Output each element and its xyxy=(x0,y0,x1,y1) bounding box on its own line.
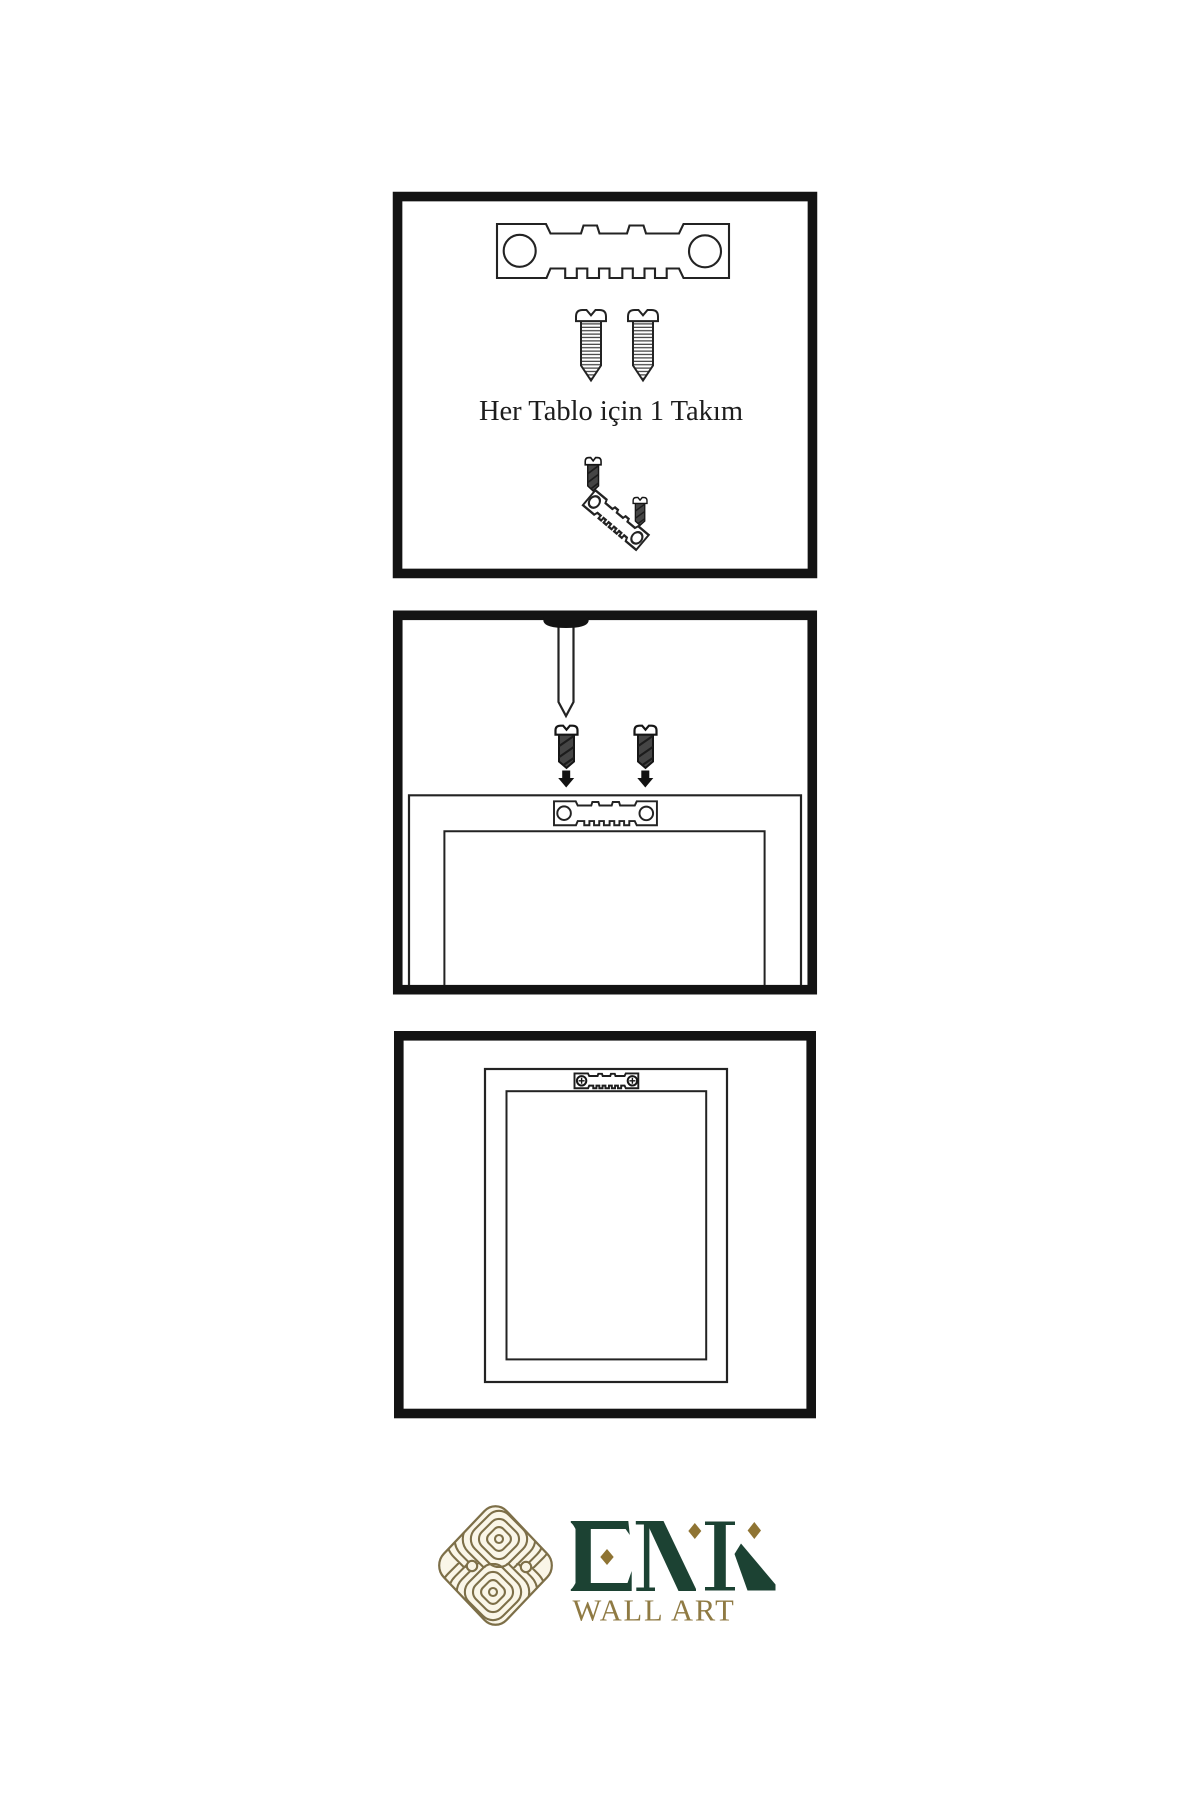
svg-text:WALL ART: WALL ART xyxy=(573,1594,736,1628)
svg-text:Her Tablo için 1 Takım: Her Tablo için 1 Takım xyxy=(479,396,743,427)
